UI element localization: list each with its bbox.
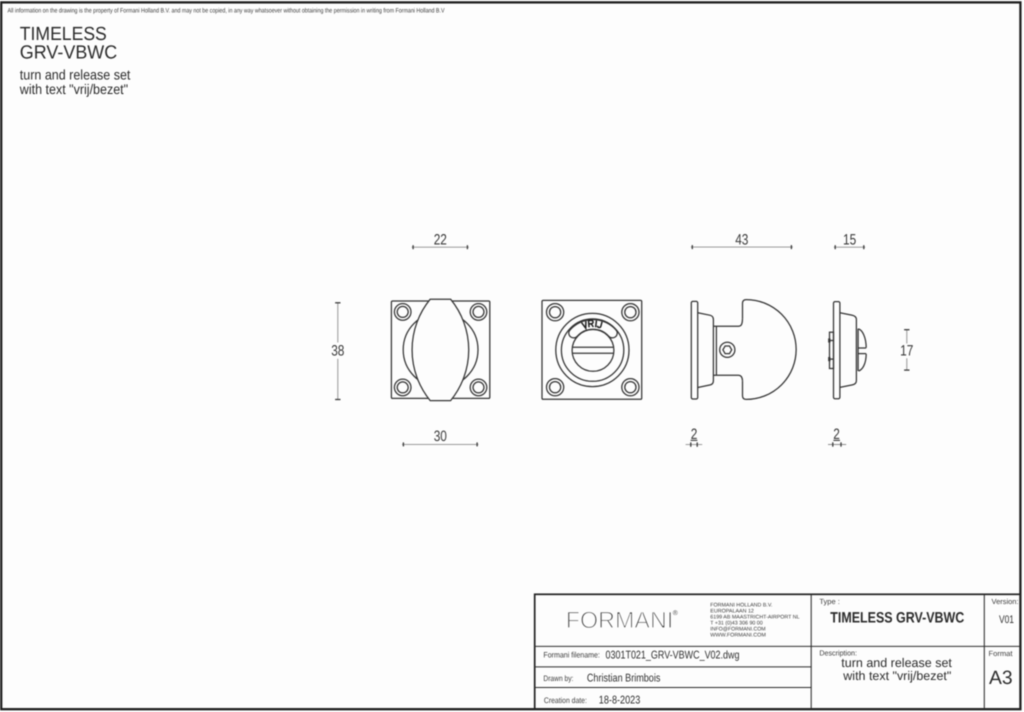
svg-text:22: 22: [434, 232, 447, 249]
svg-text:18-8-2023: 18-8-2023: [599, 694, 641, 706]
svg-text:FORMANI: FORMANI: [566, 607, 674, 633]
svg-text:®: ®: [673, 610, 678, 617]
svg-text:V01: V01: [999, 614, 1014, 626]
svg-text:Formani filename:: Formani filename:: [543, 650, 600, 659]
svg-text:with text "vrij/bezet": with text "vrij/bezet": [842, 669, 951, 683]
svg-text:43: 43: [735, 231, 748, 248]
svg-text:turn and release set: turn and release set: [841, 656, 952, 670]
svg-text:Type :: Type :: [819, 597, 839, 606]
svg-text:TIMELESS GRV-VBWC: TIMELESS GRV-VBWC: [830, 610, 964, 627]
svg-text:with text "vrij/bezet": with text "vrij/bezet": [19, 81, 128, 97]
svg-text:WWW.FORMANI.COM: WWW.FORMANI.COM: [710, 633, 766, 639]
svg-text:turn and release set: turn and release set: [20, 66, 131, 82]
svg-text:Christian Brimbois: Christian Brimbois: [587, 673, 661, 685]
svg-text:15: 15: [843, 231, 856, 248]
svg-text:Format: Format: [989, 649, 1014, 658]
svg-text:Drawn by:: Drawn by:: [543, 674, 573, 683]
svg-text:All information on the drawing: All information on the drawing is the pr…: [8, 8, 446, 15]
svg-text:17: 17: [900, 343, 913, 360]
svg-text:Creation date:: Creation date:: [544, 696, 587, 705]
svg-text:Version:: Version:: [992, 597, 1019, 606]
svg-text:38: 38: [331, 343, 344, 360]
svg-text:GRV-VBWC: GRV-VBWC: [20, 43, 117, 64]
svg-text:30: 30: [434, 428, 447, 445]
svg-text:0301T021_GRV-VBWC_V02.dwg: 0301T021_GRV-VBWC_V02.dwg: [606, 649, 740, 661]
svg-text:A3: A3: [989, 668, 1013, 689]
